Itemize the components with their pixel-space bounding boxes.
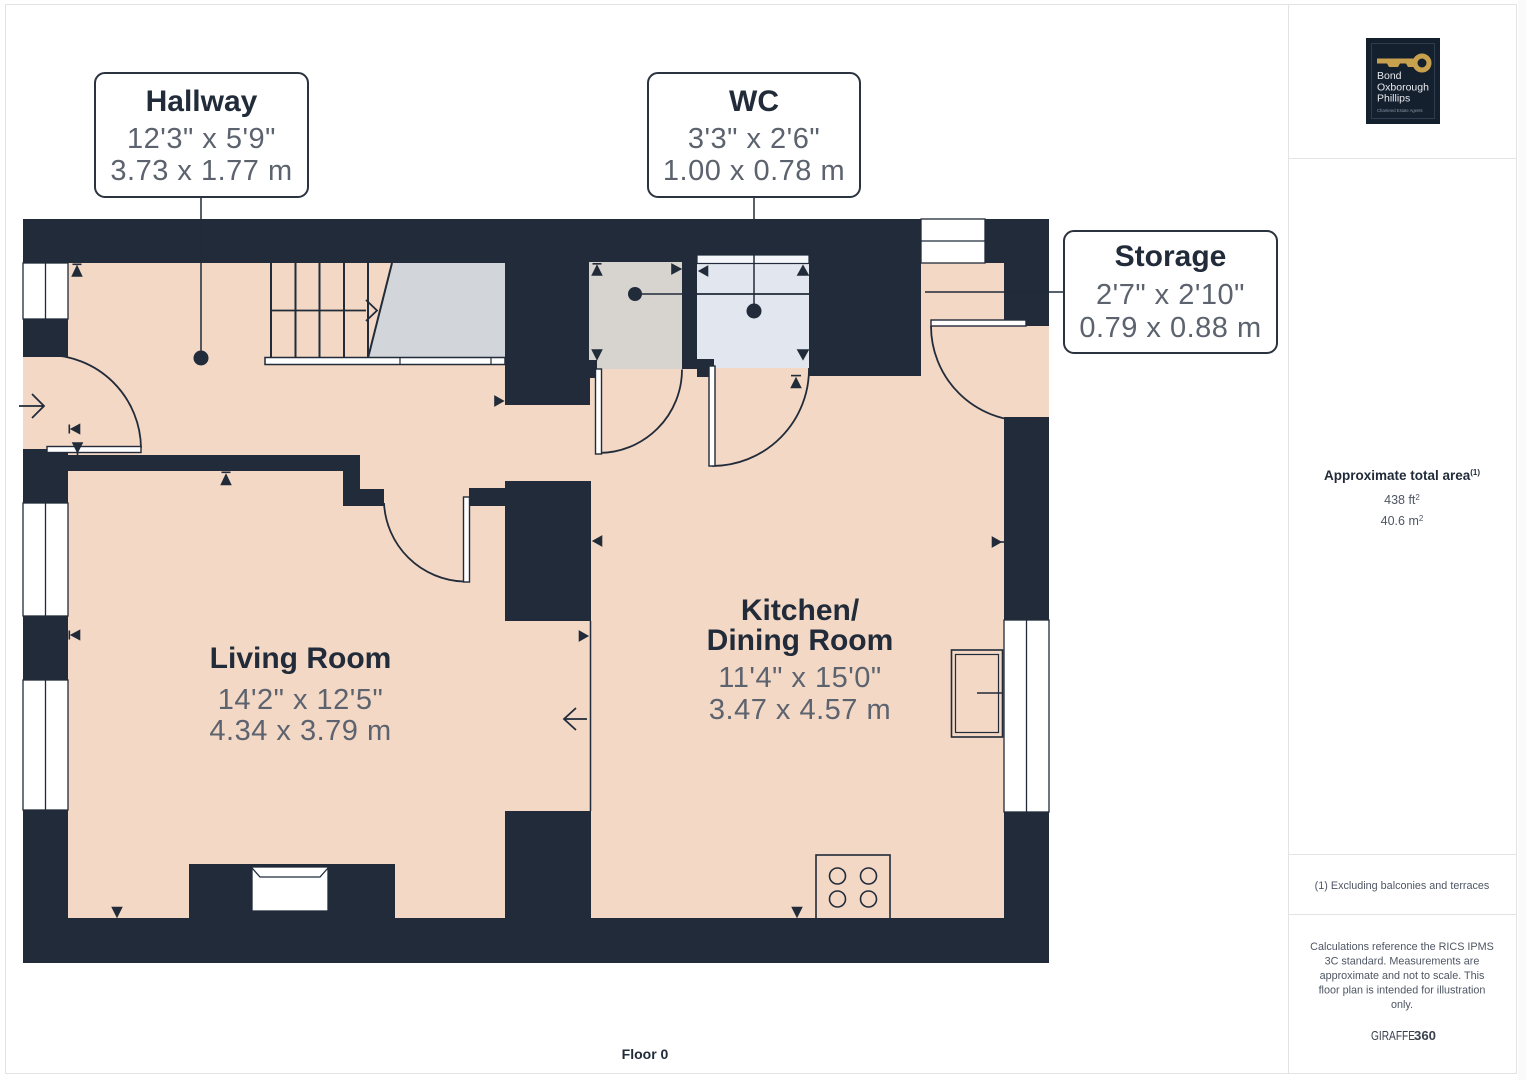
svg-text:Kitchen/: Kitchen/: [741, 594, 860, 627]
svg-text:360: 360: [1414, 1028, 1436, 1043]
svg-text:WC: WC: [729, 85, 779, 118]
svg-text:40.6 m2: 40.6 m2: [1381, 514, 1424, 528]
svg-text:438 ft2: 438 ft2: [1384, 493, 1420, 507]
svg-text:floor plan is intended for ill: floor plan is intended for illustration: [1319, 985, 1486, 997]
svg-text:3'3" x 2'6": 3'3" x 2'6": [688, 123, 820, 155]
svg-text:Floor 0: Floor 0: [622, 1046, 669, 1062]
svg-text:(1) Excluding balconies and te: (1) Excluding balconies and terraces: [1315, 880, 1490, 892]
svg-text:approximate and not to scale.: approximate and not to scale. This: [1320, 970, 1485, 982]
svg-text:11'4" x 15'0": 11'4" x 15'0": [718, 662, 881, 694]
svg-text:1.00 x 0.78 m: 1.00 x 0.78 m: [663, 155, 845, 187]
svg-text:4.34 x 3.79 m: 4.34 x 3.79 m: [209, 715, 391, 747]
svg-text:GIRAFFE: GIRAFFE: [1371, 1028, 1415, 1043]
svg-text:Hallway: Hallway: [146, 85, 258, 118]
svg-text:3.73 x 1.77 m: 3.73 x 1.77 m: [110, 155, 292, 187]
svg-text:Chartered Estate Agents: Chartered Estate Agents: [1377, 108, 1423, 113]
svg-text:2'7" x 2'10": 2'7" x 2'10": [1096, 279, 1245, 311]
svg-text:Phillips: Phillips: [1377, 93, 1410, 105]
svg-text:Living Room: Living Room: [210, 642, 392, 675]
svg-text:Approximate total area(1): Approximate total area(1): [1324, 468, 1480, 483]
svg-text:14'2" x 12'5": 14'2" x 12'5": [218, 684, 384, 716]
svg-text:3C standard. Measurements are: 3C standard. Measurements are: [1325, 956, 1480, 968]
svg-text:12'3" x 5'9": 12'3" x 5'9": [127, 123, 276, 155]
svg-text:0.79 x 0.88 m: 0.79 x 0.88 m: [1079, 312, 1261, 344]
svg-text:Dining Room: Dining Room: [707, 624, 894, 657]
svg-text:only.: only.: [1391, 999, 1413, 1011]
svg-text:Calculations reference the RIC: Calculations reference the RICS IPMS: [1310, 941, 1494, 953]
svg-text:Bond: Bond: [1377, 70, 1402, 82]
svg-text:Storage: Storage: [1115, 240, 1227, 273]
svg-text:3.47 x 4.57 m: 3.47 x 4.57 m: [709, 694, 891, 726]
